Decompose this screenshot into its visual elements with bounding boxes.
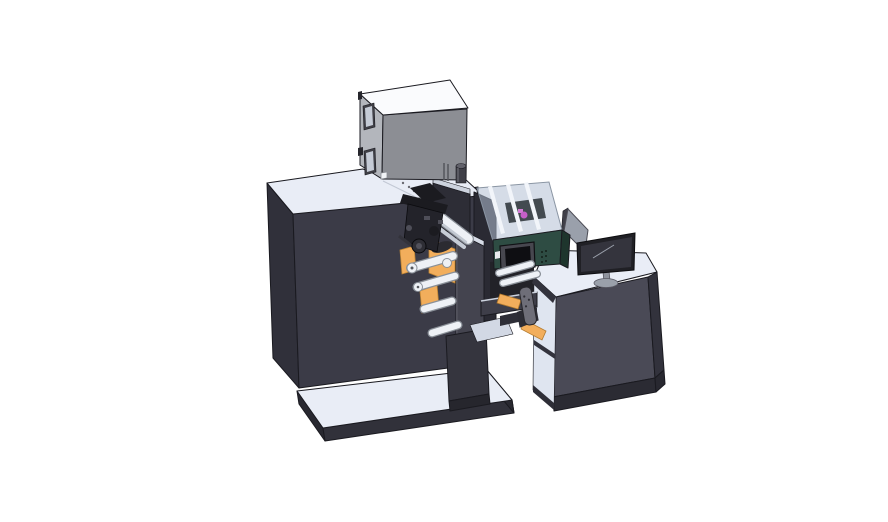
vent-dot: [545, 255, 547, 257]
cad-render-stage: [0, 0, 888, 522]
vent-dot: [545, 260, 547, 262]
control-unit-side: [560, 230, 570, 268]
feeder-box-front-face: [382, 109, 467, 180]
mechanism-knob: [406, 225, 412, 231]
sticker: [495, 251, 500, 259]
mechanism-block: [438, 220, 443, 224]
mechanism-block: [424, 216, 430, 220]
cabinet-top-dot: [408, 186, 410, 188]
feeder-box-window: [365, 106, 373, 127]
machine-cad-illustration: [0, 0, 888, 522]
mechanism-wheel: [429, 226, 439, 236]
vent-dot: [541, 256, 543, 258]
roller-hub: [411, 267, 414, 270]
feeder-box-hinge: [358, 147, 363, 156]
vent-dot: [545, 250, 547, 252]
mechanism-wheel-hub: [416, 243, 422, 249]
cylinder-cap: [456, 164, 466, 169]
feeder-box-window: [366, 151, 374, 172]
purple-part: [521, 212, 528, 219]
roller-end-cap: [443, 259, 452, 268]
desk-front-face: [553, 277, 655, 397]
monitor-stand-base: [594, 279, 618, 288]
exhaust-cylinder: [456, 164, 466, 184]
feeder-box-latch: [381, 172, 387, 179]
operator-desk: [532, 250, 665, 411]
vent-dot: [541, 261, 543, 263]
cabinet-top-dot: [402, 182, 404, 184]
vent-dot: [541, 251, 543, 253]
feeder-box-hinge: [358, 91, 362, 100]
roller-hub: [417, 286, 420, 289]
feeder-box: [358, 80, 468, 181]
